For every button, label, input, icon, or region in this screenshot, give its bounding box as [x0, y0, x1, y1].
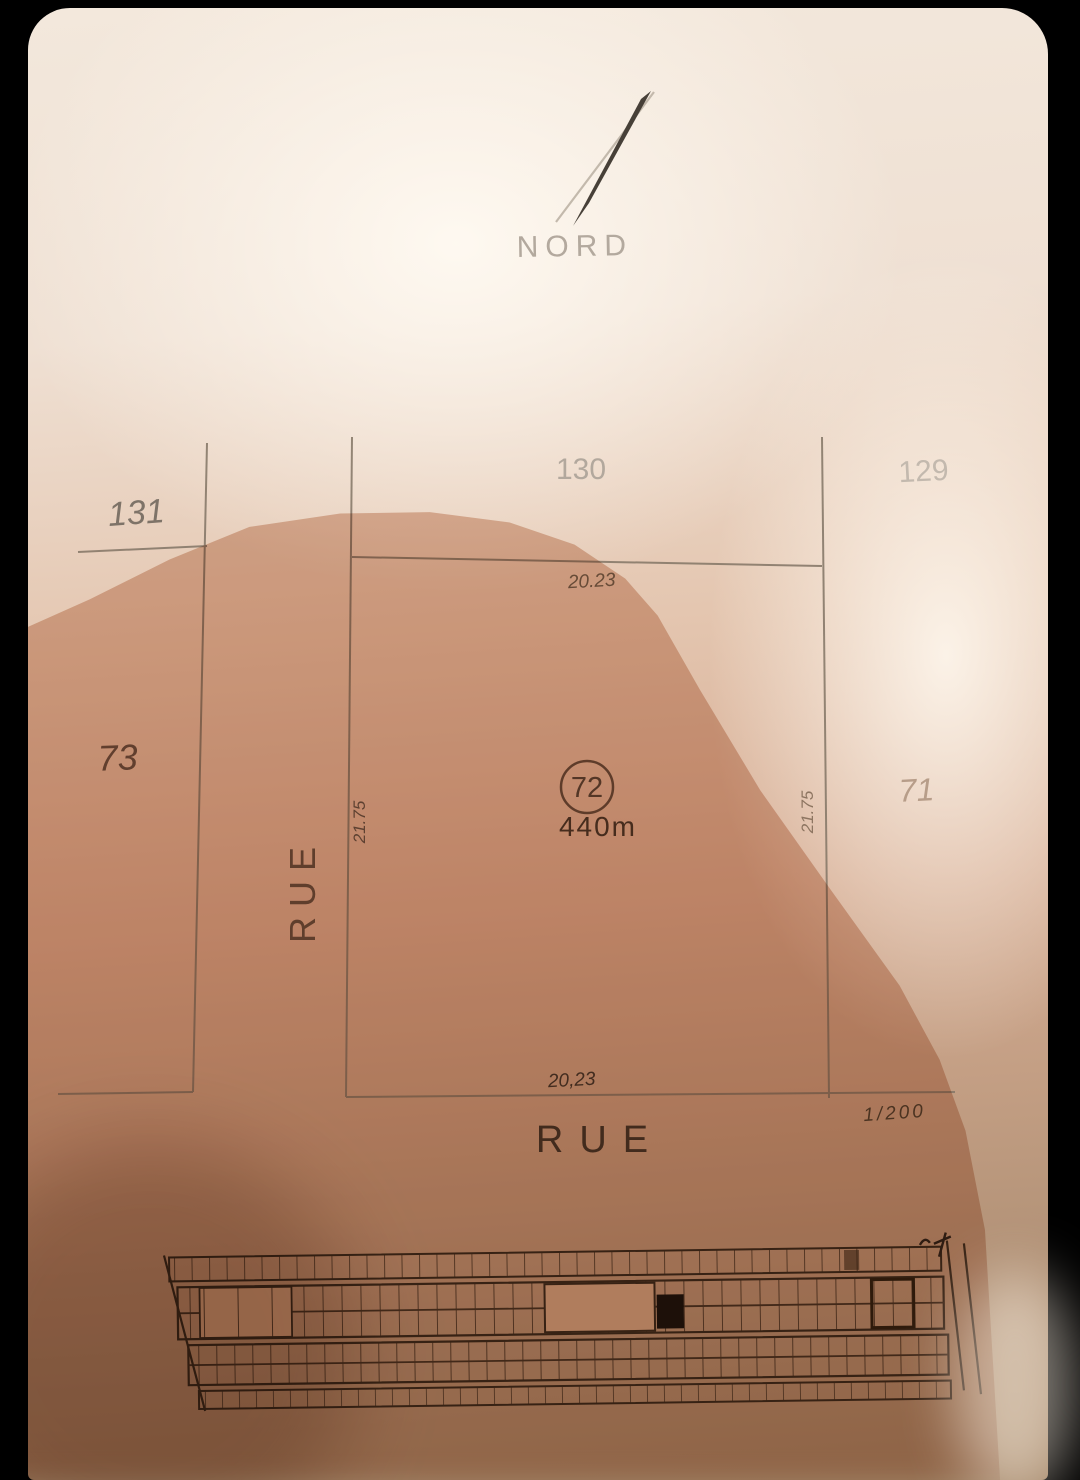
nord-label: NORD: [516, 229, 633, 264]
north-arrow-needle-icon: [573, 91, 651, 226]
photo-frame: NORD 131 130 129 73 71 72 440m 20.23 20,…: [0, 0, 1080, 1480]
dim-right: 21.75: [798, 790, 817, 834]
plot-label-130: 130: [556, 453, 606, 486]
plot-label-129: 129: [898, 454, 950, 490]
north-arrow: NORD: [516, 91, 654, 264]
boundary-line-131-73: [78, 546, 207, 552]
plot-label-131: 131: [107, 492, 166, 534]
plot-label-71: 71: [898, 771, 935, 809]
